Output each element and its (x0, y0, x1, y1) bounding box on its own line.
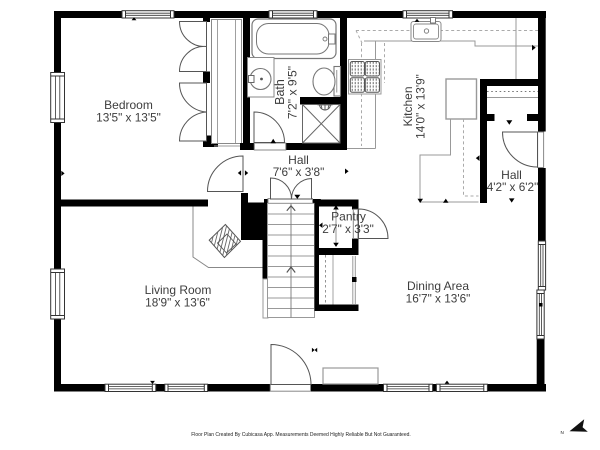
svg-text:4'2" x 6'2": 4'2" x 6'2" (487, 180, 539, 194)
svg-text:N: N (561, 430, 564, 435)
svg-text:14'0" x 13'9": 14'0" x 13'9" (414, 74, 428, 139)
svg-text:16'7" x 13'6": 16'7" x 13'6" (406, 292, 471, 306)
svg-text:13'5" x 13'5": 13'5" x 13'5" (96, 111, 161, 125)
svg-text:7'2" x 9'5": 7'2" x 9'5" (286, 66, 300, 119)
svg-text:Floor Plan Created By Cubicasa: Floor Plan Created By Cubicasa App. Meas… (191, 432, 411, 438)
svg-text:2'7" x 3'3": 2'7" x 3'3" (322, 222, 374, 236)
svg-text:7'6" x 3'8": 7'6" x 3'8" (273, 165, 325, 179)
svg-text:18'9" x 13'6": 18'9" x 13'6" (145, 296, 210, 310)
